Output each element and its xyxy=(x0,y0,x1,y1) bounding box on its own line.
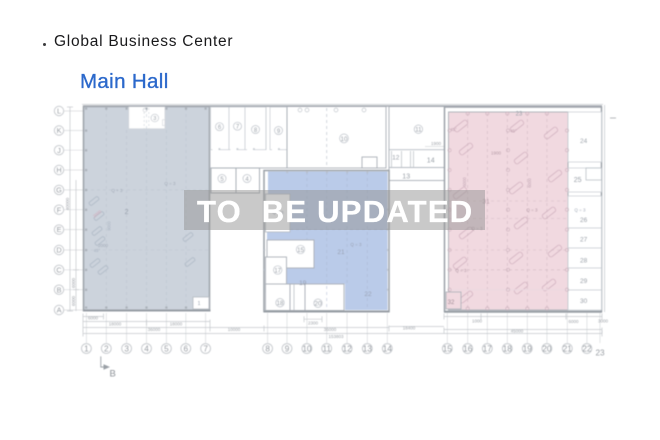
svg-text:20: 20 xyxy=(542,345,552,354)
svg-text:B: B xyxy=(110,369,116,380)
svg-text:Q = 3: Q = 3 xyxy=(164,181,176,186)
svg-text:45°: 45° xyxy=(450,127,457,132)
svg-text:Q = 3: Q = 3 xyxy=(350,242,362,247)
svg-text:2: 2 xyxy=(104,345,109,354)
svg-text:D: D xyxy=(56,246,61,255)
svg-text:153803: 153803 xyxy=(328,334,344,339)
svg-text:1900: 1900 xyxy=(491,151,502,156)
svg-text:17: 17 xyxy=(274,269,281,275)
svg-text:24: 24 xyxy=(580,138,588,145)
svg-text:Q = 3: Q = 3 xyxy=(526,208,538,213)
svg-text:18000: 18000 xyxy=(109,322,122,327)
svg-text:6000: 6000 xyxy=(71,277,76,288)
svg-text:1900: 1900 xyxy=(431,141,442,146)
svg-text:26: 26 xyxy=(580,217,588,224)
svg-text:6000: 6000 xyxy=(527,178,532,188)
svg-text:10: 10 xyxy=(302,345,312,354)
svg-text:17: 17 xyxy=(483,345,493,354)
svg-text:6: 6 xyxy=(184,345,189,354)
svg-text:1000: 1000 xyxy=(472,319,483,324)
svg-text:18000: 18000 xyxy=(170,322,183,327)
svg-text:10: 10 xyxy=(341,136,348,143)
svg-text:18400: 18400 xyxy=(403,326,416,331)
svg-text:4: 4 xyxy=(144,345,149,354)
svg-text:6000: 6000 xyxy=(71,295,76,306)
svg-text:19: 19 xyxy=(299,280,307,287)
svg-text:6000: 6000 xyxy=(462,177,467,187)
svg-text:Q = 3: Q = 3 xyxy=(574,208,586,213)
svg-text:E: E xyxy=(57,225,62,234)
svg-text:25: 25 xyxy=(574,177,582,184)
svg-text:6000: 6000 xyxy=(88,316,99,321)
svg-text:Q + 3: Q + 3 xyxy=(111,188,123,193)
svg-text:15: 15 xyxy=(443,345,453,354)
svg-text:36000: 36000 xyxy=(148,327,161,332)
svg-text:C: C xyxy=(56,265,61,274)
svg-text:1: 1 xyxy=(84,345,89,354)
svg-text:F: F xyxy=(57,205,62,214)
svg-text:B: B xyxy=(57,285,62,294)
svg-text:11: 11 xyxy=(415,128,422,134)
svg-text:23: 23 xyxy=(595,349,605,358)
svg-text:J: J xyxy=(57,146,61,155)
svg-text:13: 13 xyxy=(363,345,373,354)
svg-text:5: 5 xyxy=(164,345,169,354)
svg-text:28: 28 xyxy=(580,258,588,265)
svg-text:K: K xyxy=(57,126,62,135)
svg-text:15: 15 xyxy=(297,248,304,254)
svg-text:Q = 3: Q = 3 xyxy=(455,268,467,273)
svg-text:22: 22 xyxy=(582,345,592,354)
svg-text:21: 21 xyxy=(337,249,345,256)
svg-text:32: 32 xyxy=(448,300,455,306)
svg-text:G: G xyxy=(56,186,62,195)
svg-text:23: 23 xyxy=(516,112,523,118)
svg-text:18: 18 xyxy=(277,301,284,307)
svg-text:1: 1 xyxy=(198,301,201,307)
svg-text:12: 12 xyxy=(343,345,353,354)
svg-text:13: 13 xyxy=(402,174,410,181)
svg-text:45000: 45000 xyxy=(511,329,524,334)
svg-text:27: 27 xyxy=(580,236,588,243)
svg-text:2: 2 xyxy=(125,209,129,216)
svg-text:36000: 36000 xyxy=(324,327,337,332)
svg-text:14: 14 xyxy=(427,158,435,165)
svg-text:L: L xyxy=(57,107,61,116)
svg-text:10000: 10000 xyxy=(228,327,241,332)
svg-text:3000: 3000 xyxy=(598,319,609,324)
svg-text:8: 8 xyxy=(265,345,270,354)
svg-text:29: 29 xyxy=(580,278,588,285)
svg-text:20: 20 xyxy=(314,301,322,308)
svg-text:12: 12 xyxy=(392,155,400,162)
svg-text:14: 14 xyxy=(383,345,393,354)
svg-text:9000: 9000 xyxy=(107,221,112,231)
svg-text:A: A xyxy=(57,306,62,315)
svg-text:9: 9 xyxy=(285,345,290,354)
svg-text:16: 16 xyxy=(463,345,473,354)
svg-text:45°: 45° xyxy=(94,248,101,253)
svg-text:3: 3 xyxy=(153,116,156,122)
svg-text:45°: 45° xyxy=(510,129,517,134)
svg-text:11: 11 xyxy=(322,345,331,354)
svg-text:19: 19 xyxy=(523,345,533,354)
svg-text:7: 7 xyxy=(203,345,208,354)
svg-text:18: 18 xyxy=(503,345,513,354)
svg-text:6000: 6000 xyxy=(568,319,579,324)
svg-text:30: 30 xyxy=(580,298,588,305)
svg-text:2000: 2000 xyxy=(98,243,109,248)
svg-text:21: 21 xyxy=(563,345,573,354)
svg-text:3: 3 xyxy=(124,345,129,354)
svg-text:40000: 40000 xyxy=(65,197,70,210)
svg-text:H: H xyxy=(56,166,61,175)
svg-text:22: 22 xyxy=(364,291,372,298)
svg-text:2300: 2300 xyxy=(308,321,319,326)
